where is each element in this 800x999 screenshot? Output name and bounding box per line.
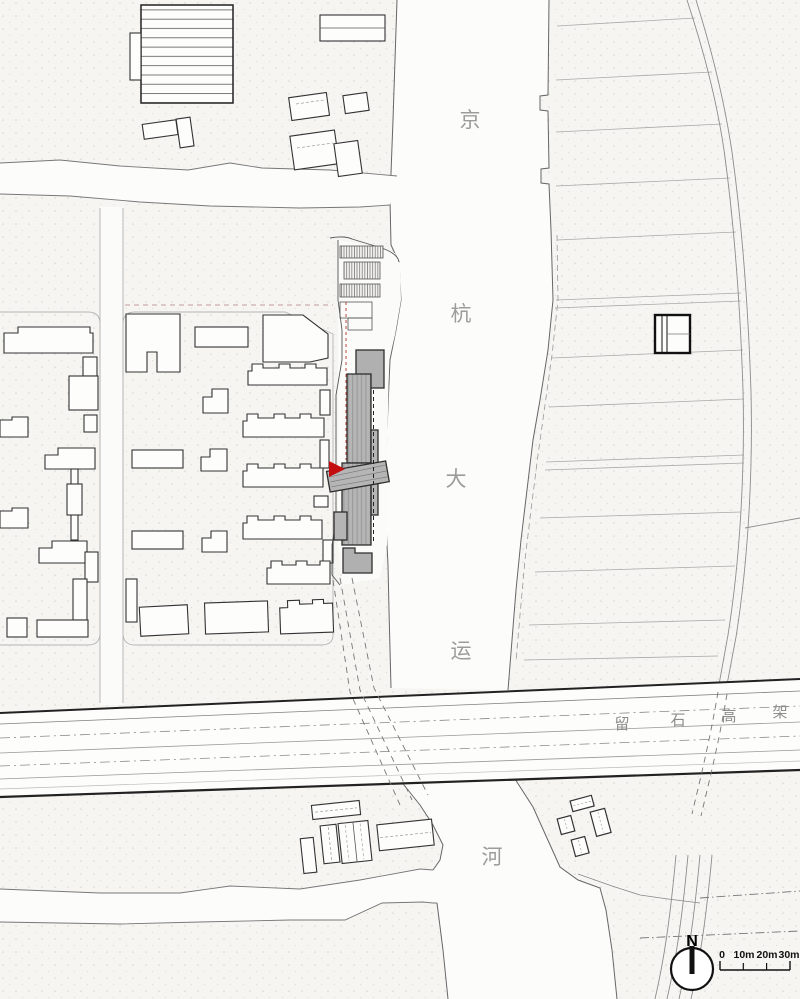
building	[314, 496, 328, 507]
building	[334, 140, 362, 176]
building	[83, 357, 97, 376]
project-annex-west	[334, 512, 347, 540]
scale-tick-0: 0	[719, 949, 725, 961]
shed	[343, 92, 369, 113]
housing-slab	[267, 561, 330, 584]
housing-slab	[248, 364, 327, 385]
striped-factory-building	[141, 5, 233, 103]
site-plan: 留 石 高 架	[0, 0, 800, 999]
canal-label-char-0: 京	[460, 109, 481, 132]
building	[0, 508, 28, 528]
compass-needle	[690, 946, 695, 974]
housing-slab	[204, 601, 268, 634]
building	[132, 450, 183, 468]
building	[73, 579, 87, 620]
housing-slab	[243, 516, 322, 539]
highway-label-char-1: 石	[670, 712, 685, 729]
housing-slab	[243, 464, 323, 487]
housing-slab	[139, 605, 188, 636]
building	[130, 33, 141, 80]
building	[69, 376, 98, 410]
scale-tick-3: 30m	[778, 949, 799, 961]
housing-slab	[243, 414, 324, 437]
canal-label-char-3: 运	[451, 640, 472, 663]
scale-tick-1: 10m	[733, 949, 754, 961]
building	[126, 579, 137, 622]
building	[7, 618, 27, 637]
building	[37, 620, 88, 637]
building	[85, 552, 98, 582]
canal-label-char-2: 大	[446, 468, 467, 491]
building	[320, 440, 329, 468]
building	[195, 327, 248, 347]
building	[84, 415, 97, 432]
canal-label-char-1: 杭	[451, 303, 472, 326]
building	[290, 130, 339, 170]
shed	[289, 92, 330, 120]
highway-label-char-3: 架	[772, 704, 787, 721]
canal-label-char-4: 河	[482, 846, 503, 869]
building	[0, 417, 28, 437]
building	[320, 390, 330, 415]
building	[323, 540, 333, 563]
highway-label-char-0: 留	[614, 716, 629, 733]
site-plan-canvas: 留 石 高 架	[0, 0, 800, 999]
project-main-slab-upper	[347, 374, 371, 463]
scale-tick-2: 20m	[756, 949, 777, 961]
east-bank-building	[655, 315, 690, 353]
building	[132, 531, 183, 549]
hatched-warehouses	[340, 246, 383, 297]
building	[67, 484, 82, 515]
north-label: N	[686, 933, 698, 950]
housing-slab	[279, 599, 333, 634]
vertical-road	[100, 207, 123, 705]
